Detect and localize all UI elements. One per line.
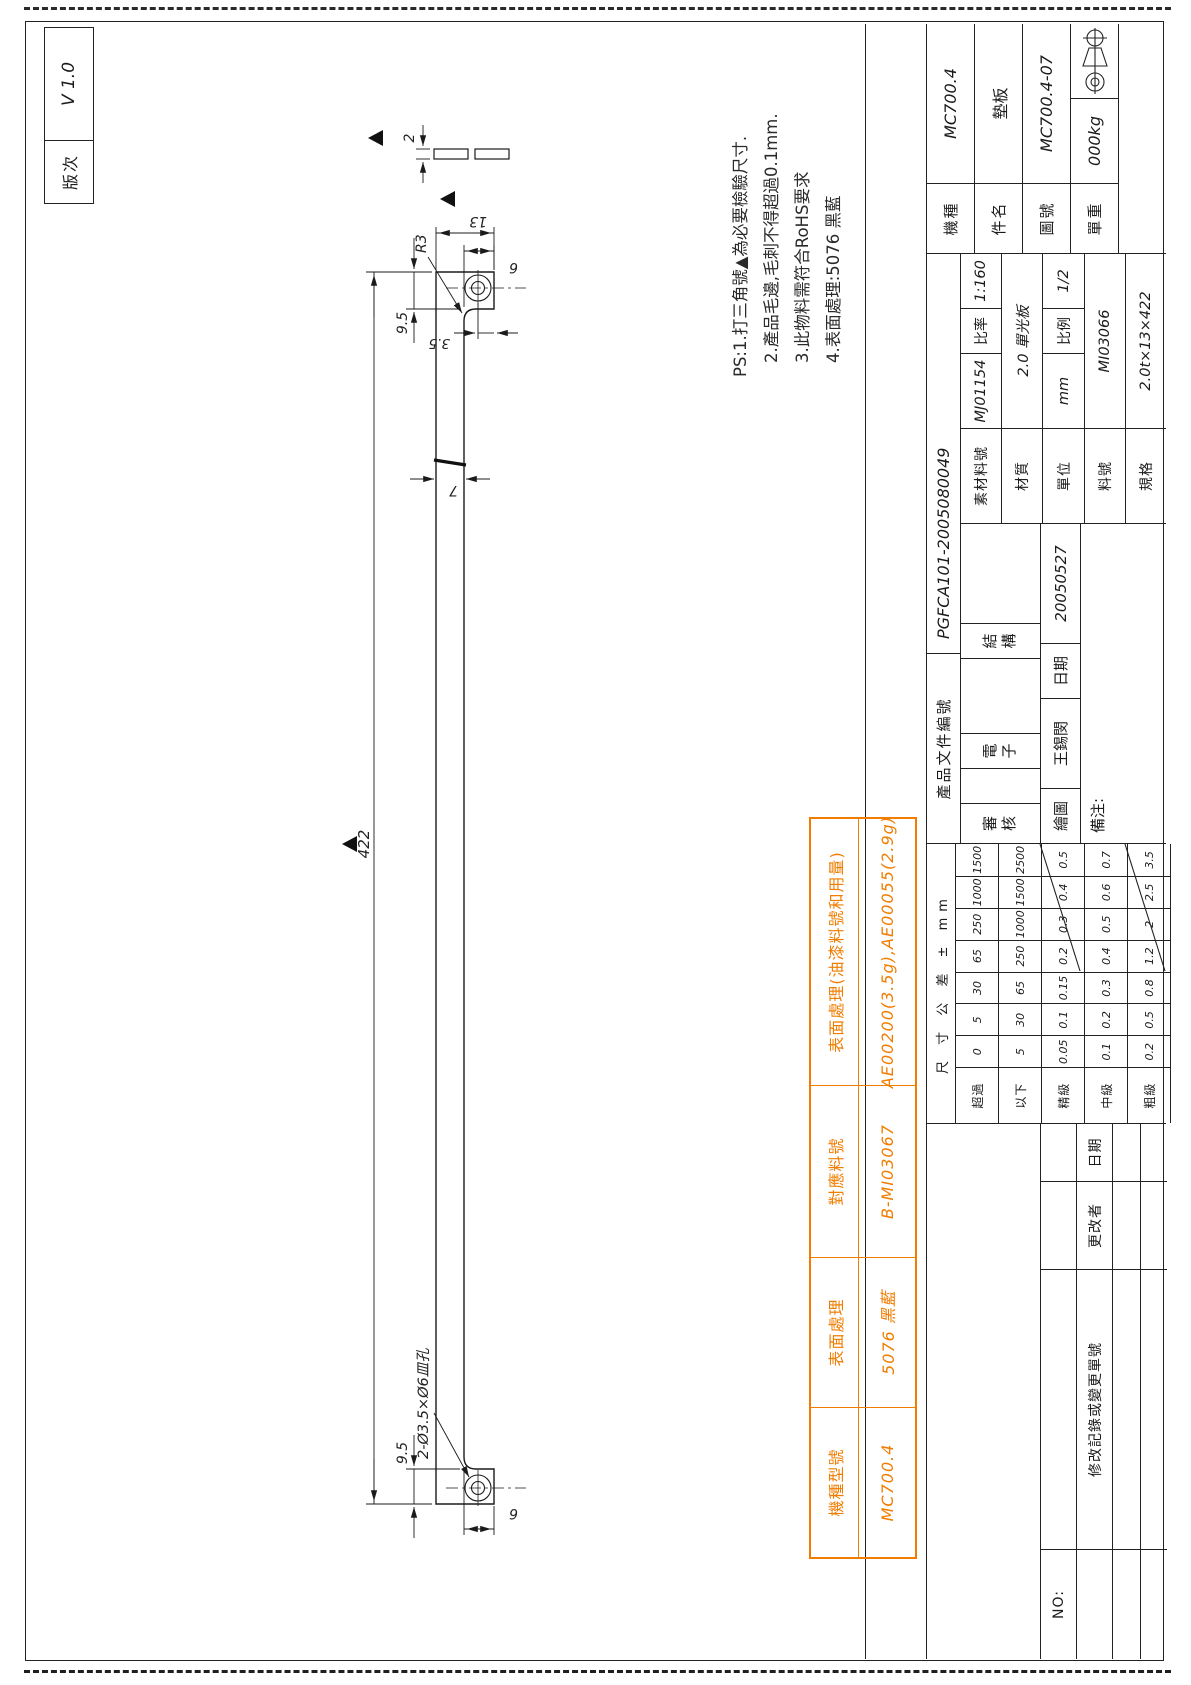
revision-empty-row (1141, 1124, 1167, 1659)
surface-treatment-table: 機種型號 表面處理 對應料號 表面處理(油漆料號和用量) MC700.4 507… (809, 817, 917, 1559)
note-line-1: PS:1.打三角號▲為必要檢驗尺寸. (725, 25, 756, 377)
approval-area: 審核 電子 結構 繪圖 王錫閔 日期 20050527 (961, 524, 1166, 844)
dim-hole-offset-text: 3.5 (429, 335, 450, 351)
unit-weight-label: 單重 (1071, 183, 1118, 253)
product-doc-label: 產品文件編號 (927, 653, 960, 843)
part-name-row: 件名 墊板 (975, 24, 1023, 253)
dim-length (366, 272, 432, 1504)
dim-end-length-left-text: 9.5 (395, 1442, 411, 1464)
raw-material-label: 素材料號 (961, 428, 1001, 523)
surface-treatment-header-row: 機種型號 表面處理 對應料號 表面處理(油漆料號和用量) (811, 819, 859, 1557)
remarks-cell: 備注: (1081, 524, 1167, 843)
ps-notes: PS:1.打三角號▲為必要檢驗尺寸. 2.產品毛邊,毛刺不得超過0.1mm. 3… (725, 25, 849, 377)
title-block: NO: 修改記錄或變更單號 更改者 日期 (926, 24, 1165, 1659)
date-label: 日期 (1041, 643, 1080, 698)
revision-no-label: NO: (1041, 1549, 1076, 1659)
part-number-value: MI03066 (1085, 254, 1125, 428)
drafter-row: 繪圖 王錫閔 日期 20050527 (1041, 524, 1081, 843)
structure-cell: 結構 (961, 623, 1040, 658)
page-edge-marks-bottom (24, 1670, 1171, 1673)
dim-end-length-left (406, 1435, 460, 1538)
part-outline (436, 272, 494, 1504)
revision-header-date: 日期 (1077, 1124, 1112, 1181)
value-matching-part: B-MI03067 (859, 1085, 915, 1257)
dim-width (436, 227, 494, 270)
header-surface: 表面處理 (811, 1257, 859, 1407)
dim-width-text: 13 (469, 213, 487, 229)
drawing-number-value: MC700.4-07 (1023, 24, 1070, 183)
product-doc-value: PGFCA101-2005080049 (927, 254, 960, 653)
signature-row: 審核 電子 結構 (961, 524, 1041, 843)
spec-label: 規格 (1126, 428, 1166, 523)
raw-material-row: 素材料號 MJ01154 比率 1:160 (961, 254, 1002, 523)
hole-callout-text: 2-Ø3.5×Ø6皿孔 (416, 1348, 432, 1459)
inspection-triangle-width (440, 191, 455, 207)
unit-weight-value: 000kg (1071, 98, 1118, 183)
electronic-label: 電子 (982, 741, 1020, 762)
revision-table: NO: 修改記錄或變更單號 更改者 日期 (1040, 1124, 1166, 1659)
drafter-name: 王錫閔 (1041, 698, 1080, 788)
ratio-value: 1:160 (961, 254, 1001, 308)
revision-header-changer: 更改者 (1077, 1181, 1112, 1269)
drawing-number-label: 圖號 (1023, 183, 1070, 253)
material-label: 材質 (1002, 428, 1042, 523)
tol-label-over: 超過 (956, 1067, 998, 1123)
unit-label: 單位 (1043, 428, 1083, 523)
value-surface: 5076 黑藍 (859, 1257, 915, 1407)
machine-row: 機種 MC700.4 (927, 24, 975, 253)
value-model: MC700.4 (859, 1407, 915, 1557)
revision-header-row: 修改記錄或變更單號 更改者 日期 (1077, 1124, 1113, 1659)
side-view (434, 149, 509, 159)
tol-label-coarse: 粗級 (1128, 1067, 1170, 1123)
tolerance-table: 尺 寸 公 差 ± mm 超過 0 5 30 65 250 1000 1500 … (927, 844, 1166, 1124)
scale-label: 比例 (1043, 308, 1083, 353)
review-label: 審核 (982, 813, 1020, 834)
dim-mid-width-text: 7 (449, 482, 458, 498)
machine-value: MC700.4 (927, 24, 974, 183)
dim-length-text: 422 (355, 830, 373, 859)
hole-left (446, 1470, 526, 1506)
header-matching-part: 對應料號 (811, 1085, 859, 1257)
tolerance-row-under: 以下 5 30 65 250 1000 1500 2500 (999, 844, 1042, 1123)
part-name-label: 件名 (975, 183, 1022, 253)
product-doc-row: 產品文件編號 PGFCA101-2005080049 (927, 254, 961, 844)
review-signature-cell (961, 768, 1040, 803)
material-grid: 素材料號 MJ01154 比率 1:160 材質 2.0 單光板 單位 mm 比… (961, 254, 1166, 524)
inspection-triangle-thickness (368, 130, 383, 146)
part-name-value: 墊板 (975, 24, 1022, 183)
tolerance-row-fine: 精級 0.05 0.1 0.15 0.2 0.3 0.4 0.5 (1042, 844, 1085, 1123)
tol-label-under: 以下 (999, 1067, 1041, 1123)
machine-label: 機種 (927, 183, 974, 253)
tolerance-row-over: 超過 0 5 30 65 250 1000 1500 (956, 844, 999, 1123)
surface-treatment-value-row: MC700.4 5076 黑藍 B-MI03067 AE00200(3.5g),… (859, 819, 915, 1557)
value-paint-usage: AE00200(3.5g),AE00055(2.9g) (859, 819, 915, 1085)
raw-material-value: MJ01154 (961, 353, 1001, 428)
structure-signature-cell (961, 524, 1040, 623)
radius-leader (428, 257, 462, 313)
header-paint-usage: 表面處理(油漆料號和用量) (811, 819, 859, 1085)
tol-label-fine: 精級 (1042, 1067, 1084, 1123)
structure-label: 結構 (982, 631, 1020, 652)
note-line-2: 2.產品毛邊,毛刺不得超過0.1mm. (756, 25, 787, 377)
material-row: 材質 2.0 單光板 (1002, 254, 1043, 523)
version-value: V 1.0 (45, 28, 93, 140)
remarks-label: 備注: (1087, 798, 1108, 833)
revision-empty-cell (1077, 1549, 1112, 1659)
scale-value: 1/2 (1043, 254, 1083, 308)
tol-label-medium: 中級 (1085, 1067, 1127, 1123)
spec-row: 規格 2.0t×13×422 (1126, 254, 1166, 523)
material-value: 2.0 單光板 (1002, 254, 1042, 428)
note-line-3: 3.此物料需符合RoHS要求 (787, 25, 818, 377)
tolerance-row-coarse: 粗級 0.2 0.5 0.8 1.2 2 2.5 3.5 (1128, 844, 1171, 1123)
dim-end-length-right-text: 9.5 (395, 312, 411, 334)
break-mark (434, 460, 466, 465)
revision-empty-cell (1041, 1181, 1076, 1269)
part-id-grid: 機種 MC700.4 件名 墊板 圖號 MC700.4-07 單重 000kg (927, 24, 1166, 254)
draw-label: 繪圖 (1041, 788, 1080, 843)
tolerance-title: 尺 寸 公 差 ± mm (927, 844, 956, 1123)
dim-end-length-right (406, 238, 460, 343)
electronic-signature-cell (961, 658, 1040, 733)
electronic-cell: 電子 (961, 733, 1040, 768)
revision-header-record: 修改記錄或變更單號 (1077, 1269, 1112, 1549)
version-box: 版次 V 1.0 (44, 27, 94, 204)
dim-end-width-right-text: 6 (509, 259, 518, 275)
dim-thickness (416, 125, 430, 183)
projection-symbol-icon (1071, 24, 1118, 98)
ratio-label: 比率 (961, 308, 1001, 353)
revision-no-row: NO: (1041, 1124, 1077, 1659)
radius-callout-text: R3 (414, 234, 430, 253)
revision-empty-row (1113, 1124, 1141, 1659)
unit-row: 單位 mm 比例 1/2 (1043, 254, 1084, 523)
dim-end-width-right (464, 245, 494, 307)
header-model: 機種型號 (811, 1407, 859, 1557)
tolerance-row-medium: 中級 0.1 0.2 0.3 0.4 0.5 0.6 0.7 (1085, 844, 1128, 1123)
part-number-row: 料號 MI03066 (1085, 254, 1126, 523)
rotated-landscape-sheet: 版次 V 1.0 PS:1.打三角號▲為必要檢驗尺寸. 2.產品毛邊,毛刺不得超… (27, 24, 1165, 1659)
part-drawing: 422 9.5 9.5 (322, 99, 622, 1579)
revision-empty-cell (1041, 1124, 1076, 1181)
unit-value: mm (1043, 353, 1083, 428)
revision-empty-cell (1041, 1269, 1076, 1549)
page-edge-marks-top (24, 7, 1171, 10)
dim-end-width-left-text: 6 (509, 1505, 518, 1521)
empty-row (1119, 24, 1166, 253)
review-cell: 審核 (961, 803, 1040, 843)
version-label: 版次 (45, 140, 93, 203)
drawing-number-row: 圖號 MC700.4-07 (1023, 24, 1071, 253)
dim-thickness-text: 2 (402, 133, 418, 142)
spec-value: 2.0t×13×422 (1126, 254, 1166, 428)
drawing-sheet-page: 版次 V 1.0 PS:1.打三角號▲為必要檢驗尺寸. 2.產品毛邊,毛刺不得超… (0, 0, 1191, 1685)
unit-weight-row: 單重 000kg (1071, 24, 1119, 253)
part-number-label: 料號 (1085, 428, 1125, 523)
note-line-4: 4.表面處理:5076 黑藍 (818, 25, 849, 377)
date-value: 20050527 (1041, 524, 1080, 643)
